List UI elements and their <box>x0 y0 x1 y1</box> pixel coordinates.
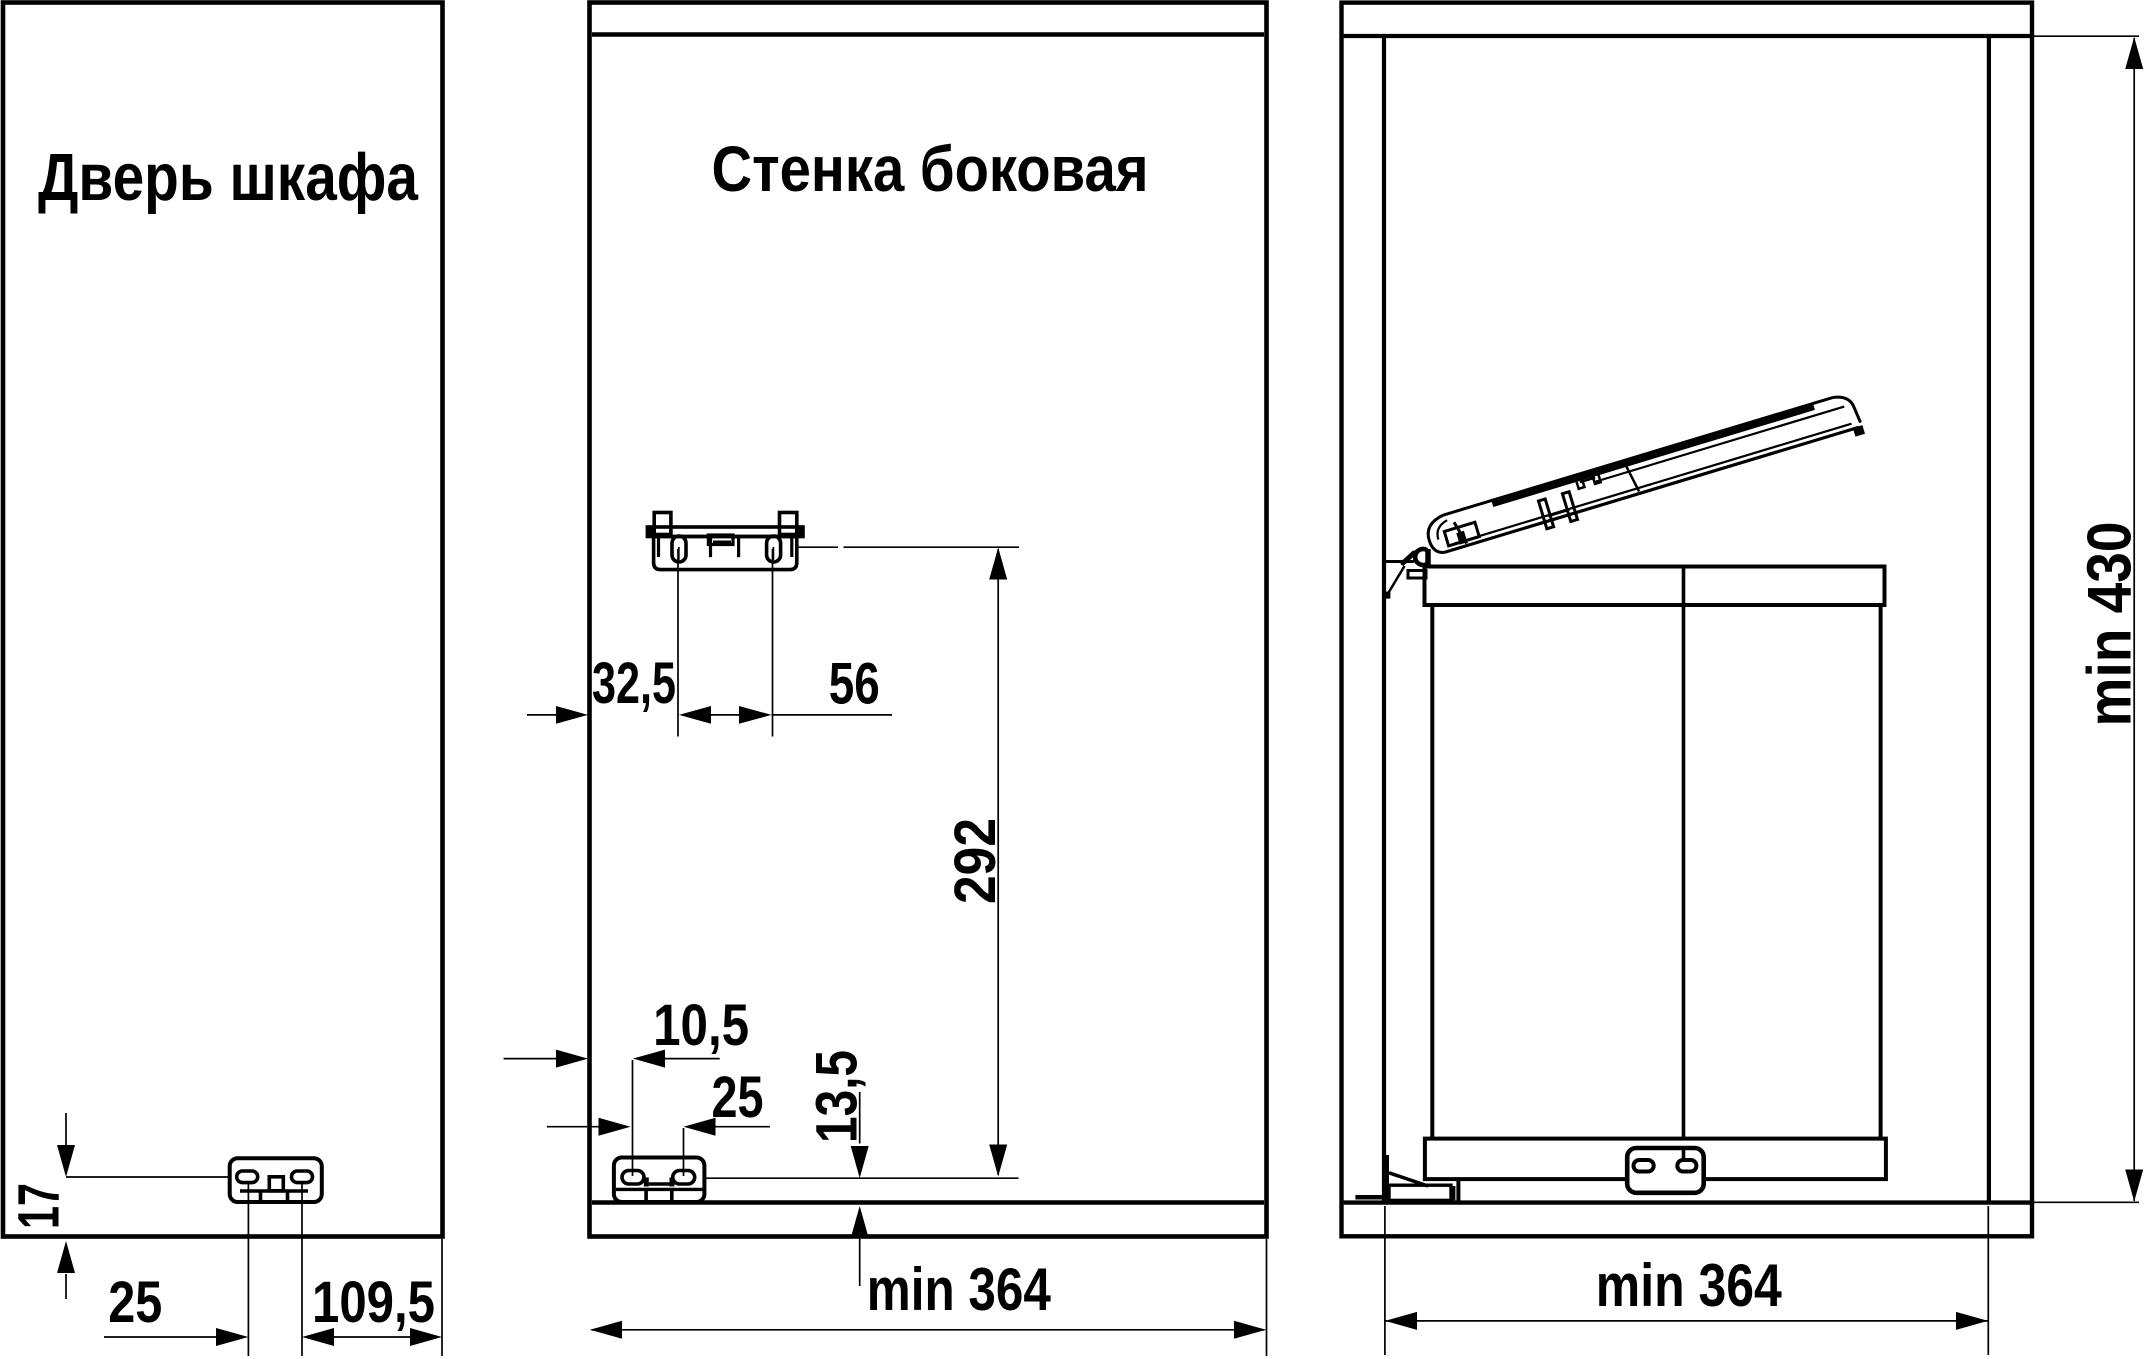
svg-text:10,5: 10,5 <box>653 993 749 1058</box>
svg-text:17: 17 <box>7 1183 72 1229</box>
svg-text:min 364: min 364 <box>1596 1252 1783 1319</box>
svg-text:13,5: 13,5 <box>805 1050 870 1143</box>
svg-text:25: 25 <box>108 1270 162 1335</box>
svg-text:Стенка боковая: Стенка боковая <box>712 133 1149 205</box>
svg-text:32,5: 32,5 <box>592 651 676 716</box>
svg-text:292: 292 <box>943 818 1008 904</box>
svg-text:min 364: min 364 <box>867 1256 1052 1323</box>
svg-text:min 430: min 430 <box>2076 522 2144 727</box>
svg-text:Дверь шкафа: Дверь шкафа <box>38 140 419 215</box>
svg-text:109,5: 109,5 <box>312 1270 435 1335</box>
svg-text:25: 25 <box>712 1065 764 1130</box>
svg-text:56: 56 <box>829 652 880 717</box>
